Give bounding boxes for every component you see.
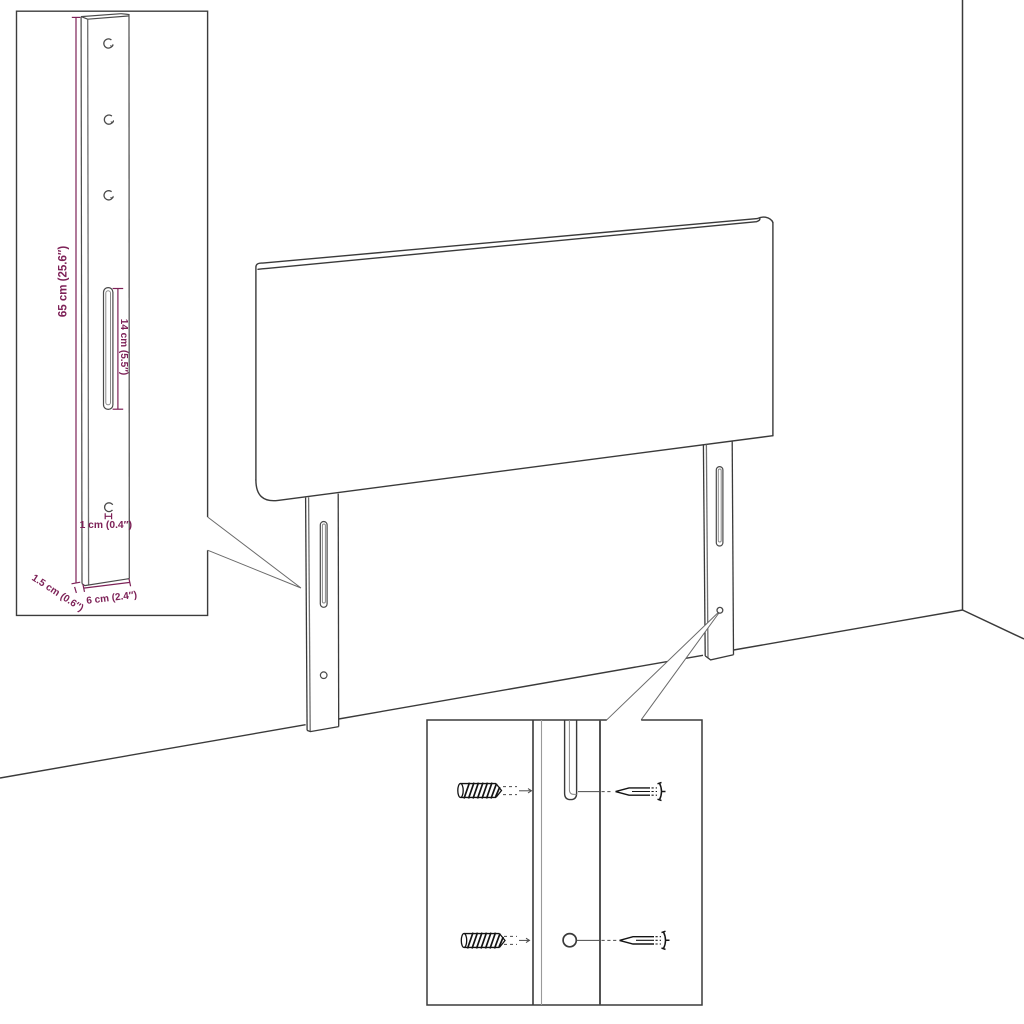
svg-text:14 cm (5.5″): 14 cm (5.5″) [118,319,129,375]
svg-text:1 cm (0.4″): 1 cm (0.4″) [80,520,132,531]
svg-text:65 cm (25.6″): 65 cm (25.6″) [58,246,70,318]
